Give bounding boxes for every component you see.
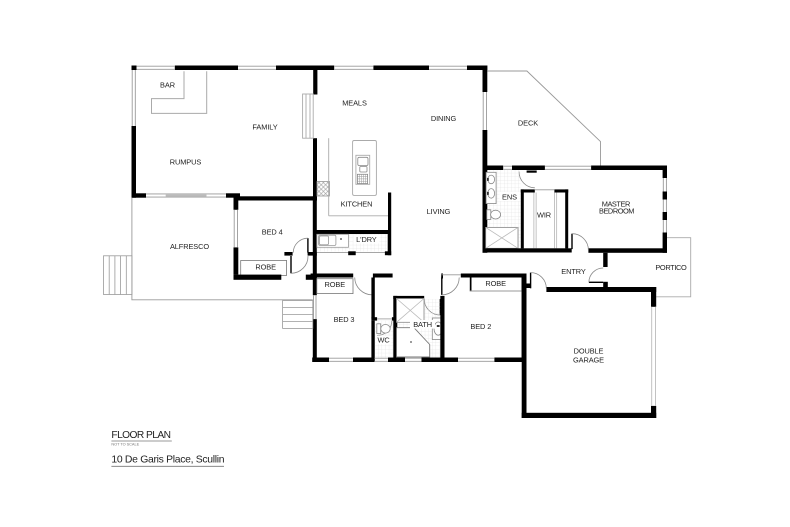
svg-text:DECK: DECK	[518, 119, 538, 128]
svg-text:ENS: ENS	[502, 193, 517, 202]
svg-text:RUMPUS: RUMPUS	[170, 158, 202, 167]
svg-text:FLOOR PLAN: FLOOR PLAN	[111, 430, 170, 441]
svg-text:ROBE: ROBE	[255, 262, 276, 271]
svg-text:ALFRESCO: ALFRESCO	[170, 242, 209, 251]
svg-text:MEALS: MEALS	[342, 99, 367, 108]
svg-text:FAMILY: FAMILY	[252, 123, 277, 132]
svg-text:BED 3: BED 3	[334, 315, 355, 324]
svg-text:BATH: BATH	[413, 320, 432, 329]
svg-text:PORTICO: PORTICO	[655, 263, 687, 272]
svg-text:DINING: DINING	[431, 114, 457, 123]
svg-text:BAR: BAR	[160, 81, 175, 90]
svg-text:KITCHEN: KITCHEN	[341, 200, 373, 209]
svg-text:LIVING: LIVING	[427, 207, 451, 216]
svg-text:L'DRY: L'DRY	[356, 235, 377, 244]
svg-text:BED 2: BED 2	[470, 322, 491, 331]
svg-text:WIR: WIR	[537, 211, 551, 220]
svg-text:BEDROOM: BEDROOM	[599, 207, 634, 216]
svg-text:DOUBLE: DOUBLE	[574, 347, 604, 356]
svg-text:10 De Garis Place, Scullin: 10 De Garis Place, Scullin	[111, 455, 224, 466]
svg-text:ENTRY: ENTRY	[561, 267, 586, 276]
svg-text:ROBE: ROBE	[325, 280, 346, 289]
svg-text:BED 4: BED 4	[262, 228, 283, 237]
svg-text:ROBE: ROBE	[485, 279, 506, 288]
svg-text:WC: WC	[378, 336, 391, 345]
svg-text:GARAGE: GARAGE	[573, 355, 604, 364]
svg-text:NOT TO SCALE: NOT TO SCALE	[111, 442, 139, 447]
